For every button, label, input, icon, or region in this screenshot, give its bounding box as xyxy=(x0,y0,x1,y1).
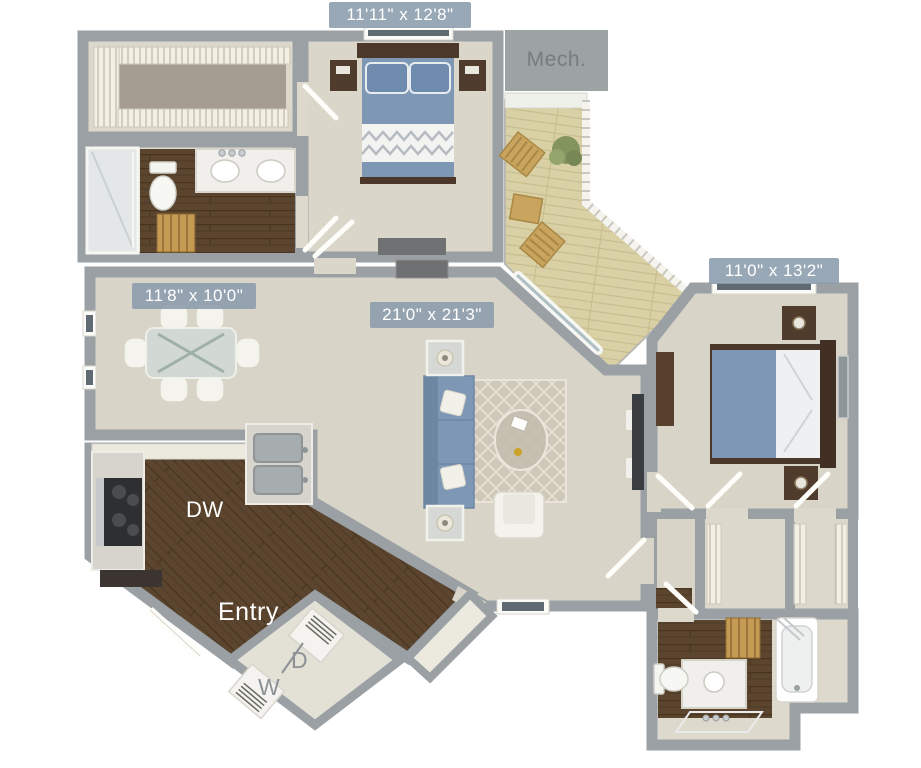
end-table-1 xyxy=(427,341,463,375)
closet-b xyxy=(790,514,853,614)
kitchen-counter-left xyxy=(92,452,144,570)
shower-1 xyxy=(87,148,138,253)
mech-room-label: Mech. xyxy=(505,48,608,72)
closet-a xyxy=(700,514,790,614)
range xyxy=(96,478,142,546)
toilet-1 xyxy=(150,162,176,210)
deck-table xyxy=(510,194,543,224)
sofa xyxy=(424,376,474,508)
bathroom-1 xyxy=(83,142,298,257)
kitchen-island xyxy=(246,424,312,504)
dimension-label-bedroom2: 11'0" x 13'2" xyxy=(709,258,839,284)
dining-table xyxy=(146,328,236,378)
bath2-mat xyxy=(726,618,760,658)
rooms xyxy=(83,27,853,745)
bath-mat xyxy=(157,214,195,252)
wall-mirror xyxy=(838,356,848,418)
floor-plan-drawing xyxy=(0,0,921,768)
entry-label: Entry xyxy=(218,598,279,627)
bed-2 xyxy=(710,340,836,468)
walk-in-closet xyxy=(83,36,298,137)
media-console xyxy=(396,260,448,278)
armchair xyxy=(494,492,544,538)
end-table-2 xyxy=(427,506,463,540)
bathtub xyxy=(776,618,818,702)
dresser-2 xyxy=(656,352,674,426)
dishwasher-label: DW xyxy=(186,497,224,523)
dimension-label-bedroom1: 11'11" x 12'8" xyxy=(329,2,471,28)
lower-cabinet xyxy=(100,570,162,587)
vanity-1 xyxy=(196,149,295,192)
dresser-1 xyxy=(378,238,446,255)
dryer-label: D xyxy=(291,647,308,674)
bed-1 xyxy=(357,43,459,184)
dimension-label-living: 21'0" x 21'3" xyxy=(370,302,494,328)
coffee-table xyxy=(495,410,547,470)
dimension-label-dining: 11'8" x 10'0" xyxy=(132,283,256,309)
bedroom1-window xyxy=(364,27,453,40)
bathroom-2 xyxy=(652,614,853,745)
floor-plan-image: 11'11" x 12'8" 11'0" x 13'2" 11'8" x 10'… xyxy=(0,0,921,768)
washer-label: W xyxy=(258,674,280,701)
